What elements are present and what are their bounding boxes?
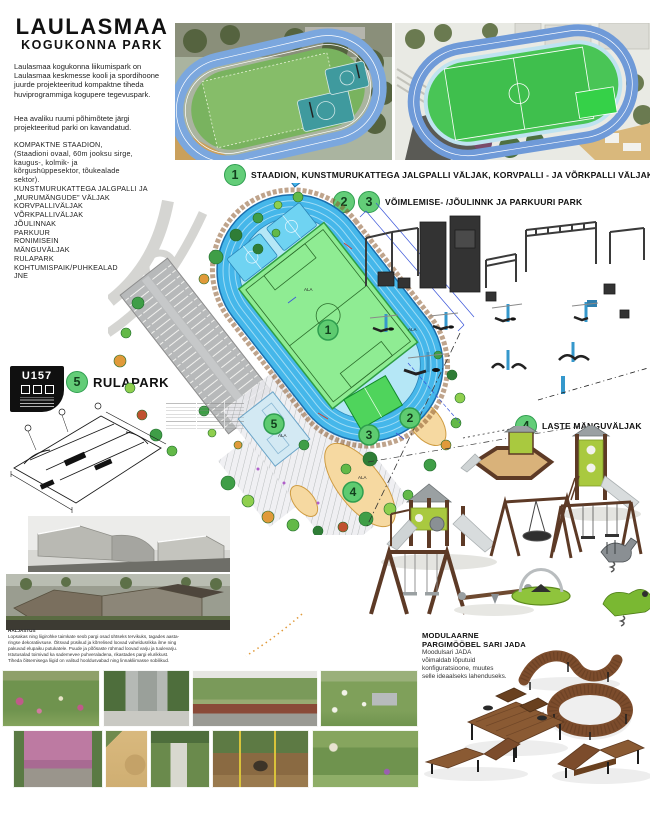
plan-marker-1: 1 — [325, 323, 332, 337]
logo-code: U157 — [22, 370, 52, 382]
skatepark-render-1 — [28, 516, 230, 572]
section-1-label: STAADION, KUNSTMURUKATTEGA JALGPALLI VÄL… — [251, 170, 650, 180]
intro-paragraph-2: Hea avaliku ruumi põhimõtete järgi proje… — [14, 114, 172, 132]
photo-wildflower-meadow — [2, 670, 100, 727]
svg-text:ALA: ALA — [304, 287, 313, 292]
furniture-renders — [418, 632, 650, 802]
planting-note: HALJASTUS Lopsakas ning liigirohke taimk… — [8, 628, 198, 664]
photo-garden-path — [150, 730, 210, 788]
photo-hammock-playground — [212, 730, 309, 788]
leader-dotted-line — [240, 612, 320, 660]
plan-marker-4: 4 — [350, 485, 357, 499]
poster-title: LAULASMAA — [12, 14, 172, 40]
spring-rider-zebra — [601, 538, 637, 572]
stadium-render-1 — [175, 23, 392, 160]
boundary-dash-line — [538, 368, 648, 400]
rulapark-spec-table — [166, 400, 244, 432]
skatepark-render-2 — [6, 574, 230, 630]
sandbox-playhouse — [461, 426, 551, 478]
play-structure-large — [381, 484, 497, 570]
photo-blossom-path — [13, 730, 103, 788]
logo-icons — [21, 385, 54, 394]
outdoor-gym-machines — [370, 300, 598, 394]
photo-park-bench — [320, 670, 418, 727]
photo-tree-alley — [103, 670, 190, 727]
photo-street-planting — [192, 670, 318, 727]
svg-text:ALA: ALA — [278, 433, 287, 438]
planting-note-line: Tiheda õitsemisega liigid on valitud hoo… — [8, 658, 198, 664]
intro-paragraph-1: Laulasmaa kogukonna liikumispark on Laul… — [14, 62, 172, 99]
photo-sand-play — [105, 730, 148, 788]
skatepark-technical-drawing — [6, 398, 168, 524]
plan-marker-2: 2 — [407, 411, 414, 425]
playground-renders — [363, 426, 650, 636]
spinner-carousel — [512, 570, 570, 606]
fitness-equipment-renders — [358, 208, 650, 404]
section-5-badge: 5 — [66, 371, 88, 393]
stadium-render-2 — [395, 23, 650, 160]
poster-board: LAULASMAA KOGUKONNA PARK Laulasmaa koguk… — [0, 0, 650, 815]
photo-garden-beds — [312, 730, 419, 788]
spring-rider-dragon — [603, 589, 650, 626]
plan-marker-5: 5 — [271, 417, 278, 431]
poster-subtitle: KOGUKONNA PARK — [12, 38, 172, 52]
label-4-leader — [463, 428, 515, 438]
